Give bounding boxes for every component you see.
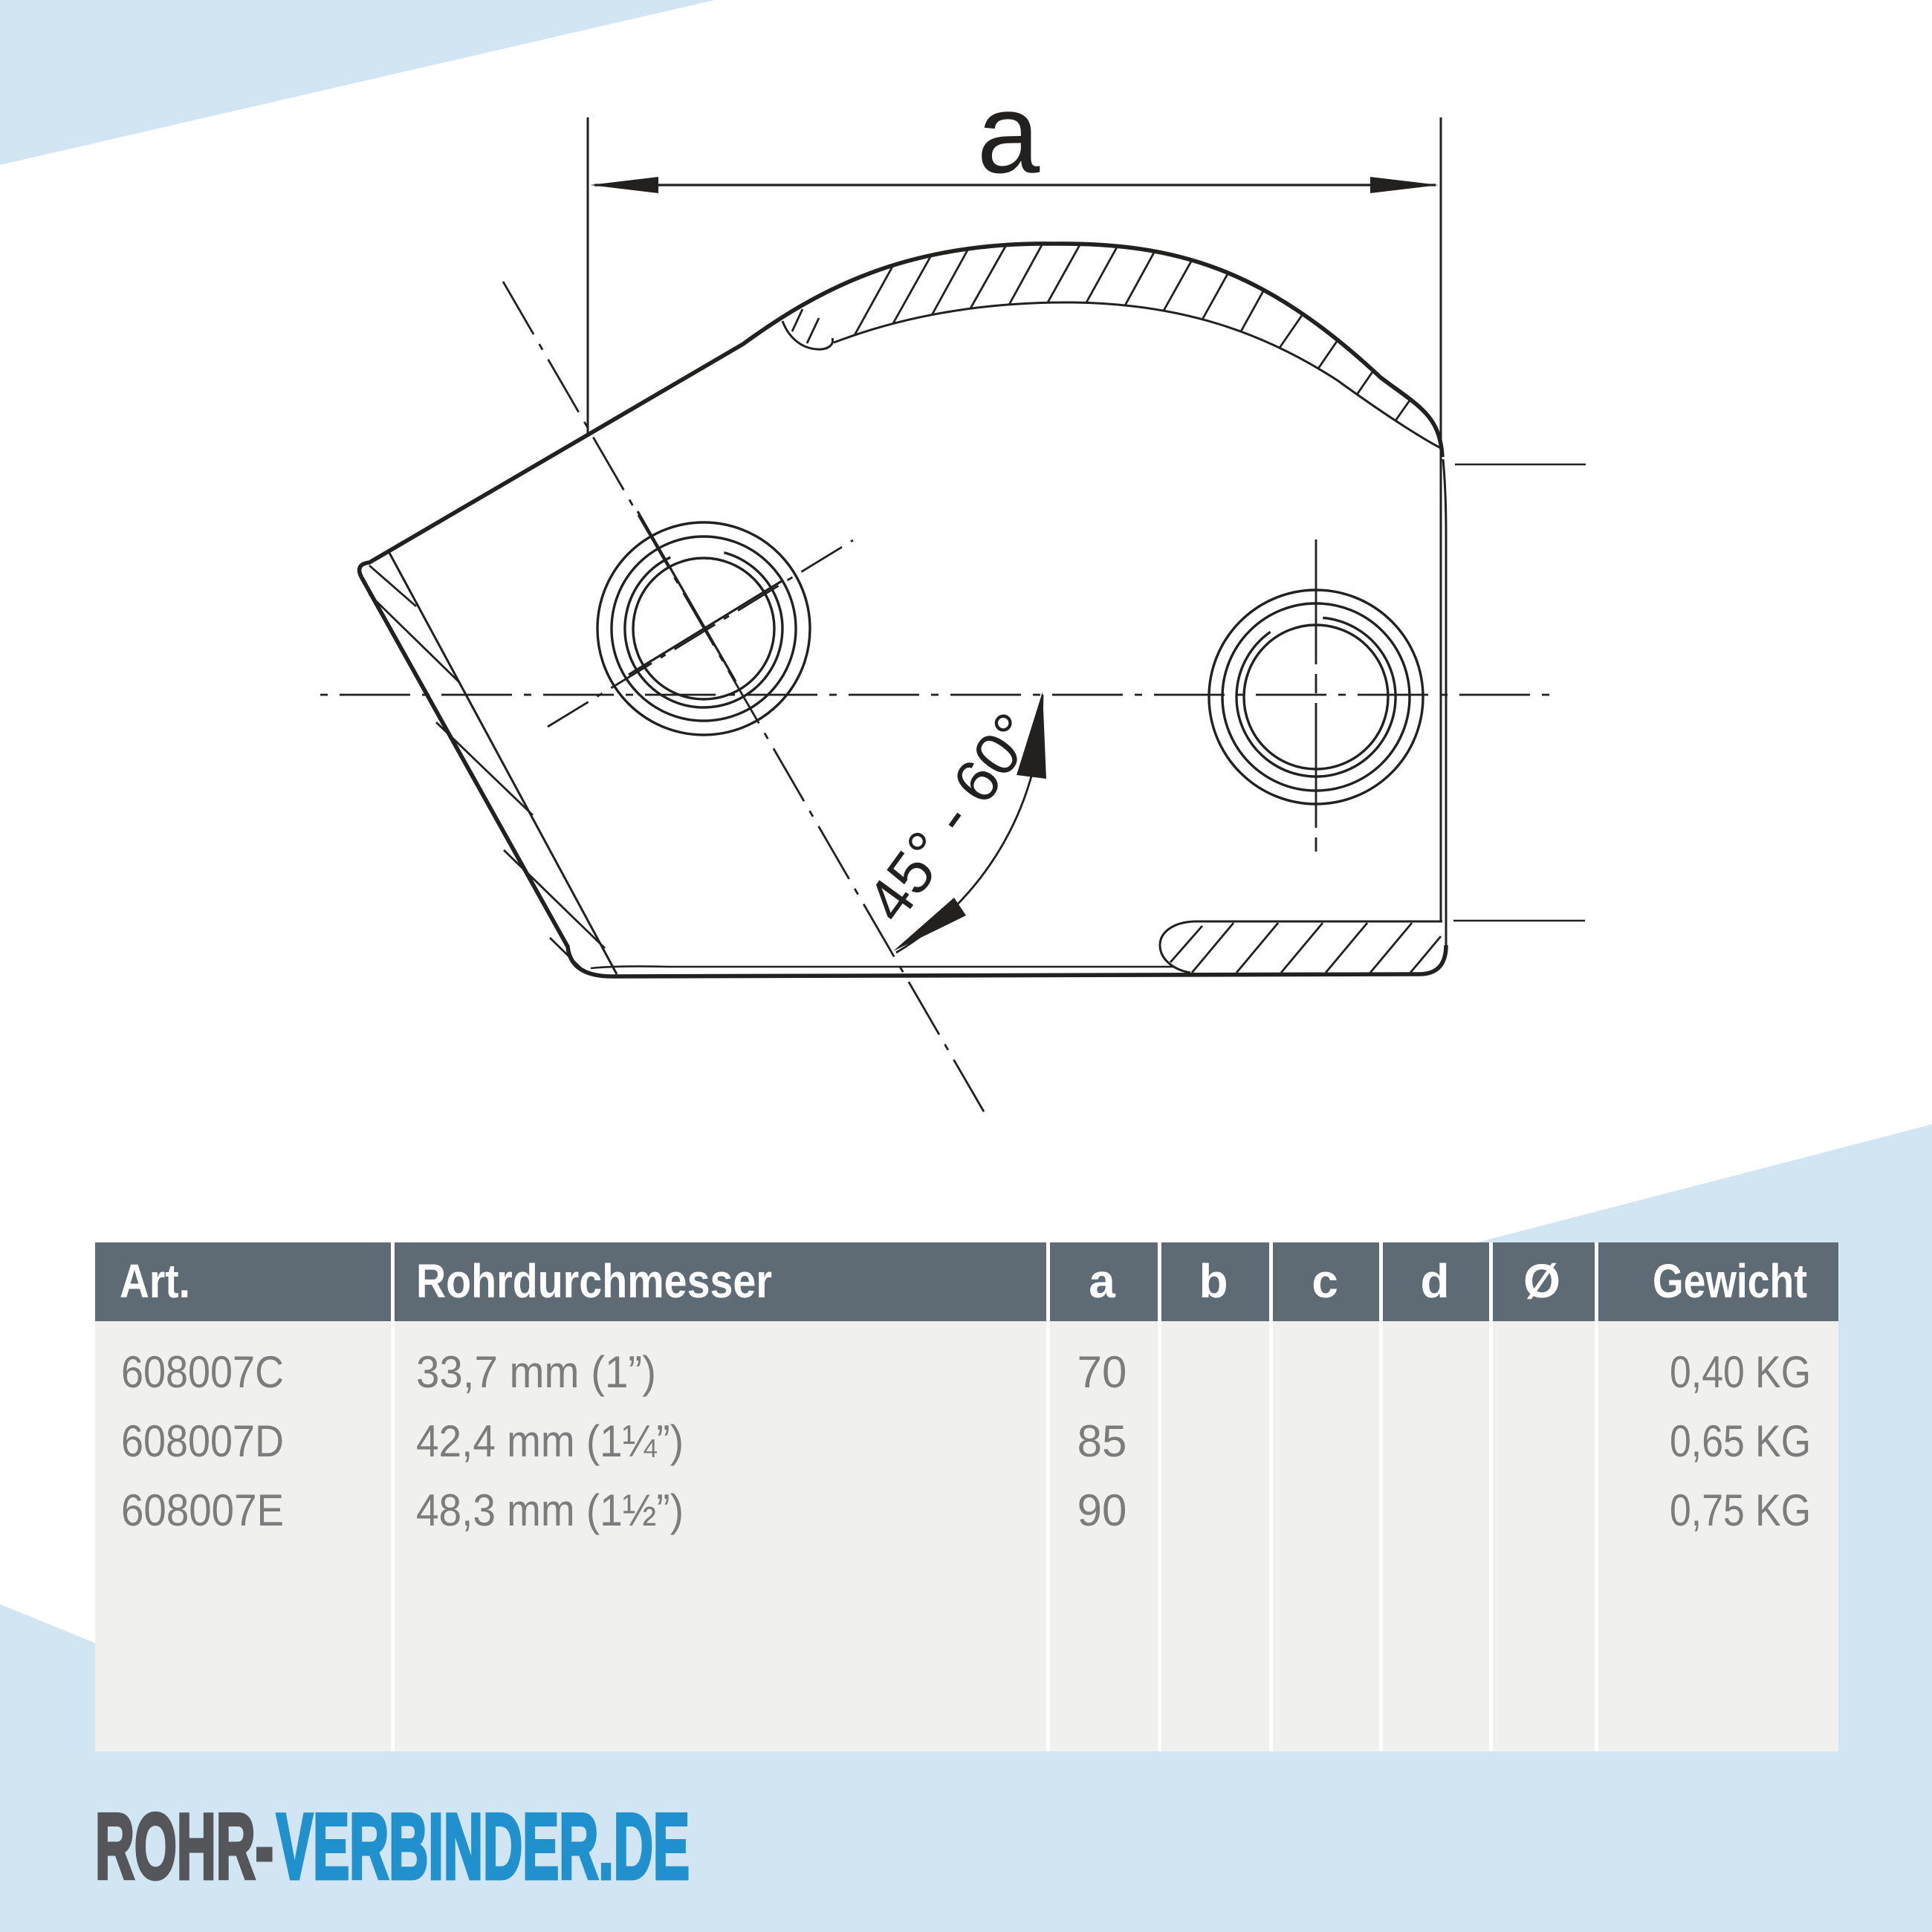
svg-text:33,7 mm (1”): 33,7 mm (1”) xyxy=(416,1347,656,1397)
svg-text:45° - 60°: 45° - 60° xyxy=(854,701,1048,934)
svg-text:VERBINDER.DE: VERBINDER.DE xyxy=(276,1795,690,1899)
svg-text:ROHR-: ROHR- xyxy=(95,1795,273,1899)
svg-text:608007C: 608007C xyxy=(121,1347,284,1397)
svg-text:0,40 KG: 0,40 KG xyxy=(1670,1347,1811,1397)
svg-text:b: b xyxy=(1199,1254,1228,1308)
svg-text:Rohrdurchmesser: Rohrdurchmesser xyxy=(416,1254,772,1308)
svg-text:Ø: Ø xyxy=(1523,1254,1560,1308)
svg-text:42,4 mm (1¼”): 42,4 mm (1¼”) xyxy=(416,1416,684,1466)
svg-text:85: 85 xyxy=(1077,1416,1127,1466)
svg-text:70: 70 xyxy=(1077,1347,1127,1397)
svg-text:Gewicht: Gewicht xyxy=(1653,1254,1807,1308)
svg-text:d: d xyxy=(1420,1254,1449,1308)
svg-text:Art.: Art. xyxy=(120,1254,190,1308)
svg-text:a: a xyxy=(1089,1254,1115,1308)
svg-text:608007E: 608007E xyxy=(121,1485,284,1535)
svg-text:c: c xyxy=(1312,1254,1338,1308)
svg-text:0,65 KG: 0,65 KG xyxy=(1670,1416,1811,1466)
svg-text:0,75 KG: 0,75 KG xyxy=(1670,1485,1811,1535)
svg-text:a: a xyxy=(977,71,1040,197)
svg-text:90: 90 xyxy=(1077,1485,1127,1535)
svg-text:608007D: 608007D xyxy=(121,1416,284,1466)
svg-text:48,3 mm (1½”): 48,3 mm (1½”) xyxy=(416,1485,684,1535)
